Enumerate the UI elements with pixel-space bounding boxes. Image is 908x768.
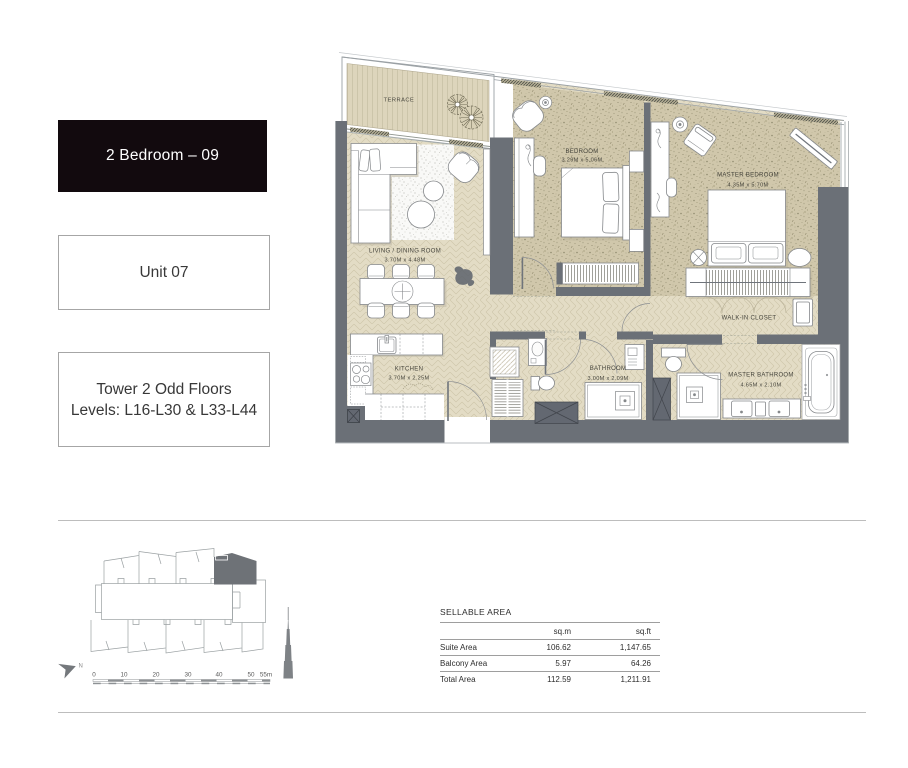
svg-text:0: 0 xyxy=(92,672,96,679)
svg-text:10: 10 xyxy=(120,672,128,679)
svg-text:TERRACE: TERRACE xyxy=(384,98,415,104)
svg-text:4.35M x 5.70M: 4.35M x 5.70M xyxy=(728,183,769,189)
svg-text:N: N xyxy=(79,664,83,670)
svg-text:MASTER BEDROOM: MASTER BEDROOM xyxy=(717,173,779,179)
svg-text:BEDROOM: BEDROOM xyxy=(565,149,598,155)
svg-text:MASTER BATHROOM: MASTER BATHROOM xyxy=(728,373,793,379)
svg-text:20: 20 xyxy=(152,672,160,679)
svg-text:4.65M x 2.10M: 4.65M x 2.10M xyxy=(741,383,782,389)
svg-text:KITCHEN: KITCHEN xyxy=(395,367,423,373)
svg-text:3.00M x 2.09M: 3.00M x 2.09M xyxy=(588,376,629,382)
svg-text:LIVING / DINING ROOM: LIVING / DINING ROOM xyxy=(369,249,441,255)
svg-text:50: 50 xyxy=(247,672,255,679)
svg-text:3.70M x 4.48M: 3.70M x 4.48M xyxy=(385,258,426,264)
svg-text:55m: 55m xyxy=(260,672,272,679)
svg-text:WALK-IN CLOSET: WALK-IN CLOSET xyxy=(722,316,777,322)
svg-text:3.29M x 5.06M: 3.29M x 5.06M xyxy=(562,158,603,164)
svg-text:40: 40 xyxy=(215,672,223,679)
svg-text:3.70M x 2.25M: 3.70M x 2.25M xyxy=(389,376,430,382)
svg-text:BATHROOM: BATHROOM xyxy=(590,366,627,372)
svg-text:30: 30 xyxy=(184,672,192,679)
